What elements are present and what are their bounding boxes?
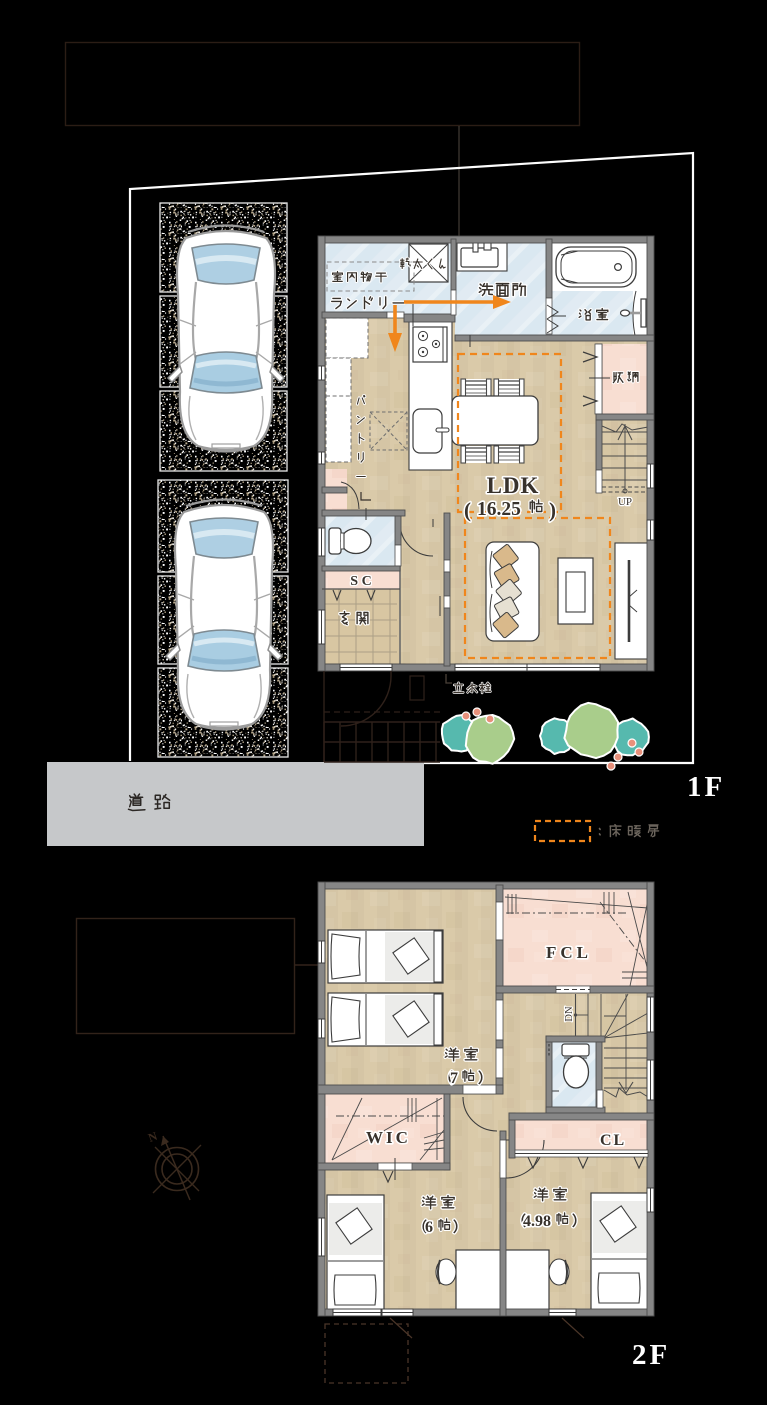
- svg-text:S C: S C: [350, 574, 371, 589]
- svg-text:4.98: 4.98: [523, 1213, 551, 1230]
- svg-text:1F: 1F: [687, 771, 725, 803]
- svg-text:FCL: FCL: [546, 943, 592, 962]
- svg-text:CL: CL: [600, 1132, 626, 1149]
- svg-text:LDK: LDK: [487, 473, 540, 498]
- svg-text:）: ）: [572, 1214, 586, 1230]
- svg-text:6: 6: [425, 1219, 433, 1236]
- svg-text:16.25: 16.25: [477, 499, 521, 520]
- svg-text:): ): [549, 498, 556, 522]
- svg-text:）: ）: [453, 1220, 467, 1236]
- svg-text:UP: UP: [618, 496, 632, 508]
- svg-text:WIC: WIC: [366, 1128, 411, 1147]
- svg-text:(: (: [464, 498, 471, 522]
- svg-text:2F: 2F: [632, 1339, 670, 1371]
- svg-text:7: 7: [450, 1070, 458, 1087]
- svg-text:）: ）: [478, 1071, 492, 1087]
- svg-text:DN: DN: [564, 1006, 575, 1022]
